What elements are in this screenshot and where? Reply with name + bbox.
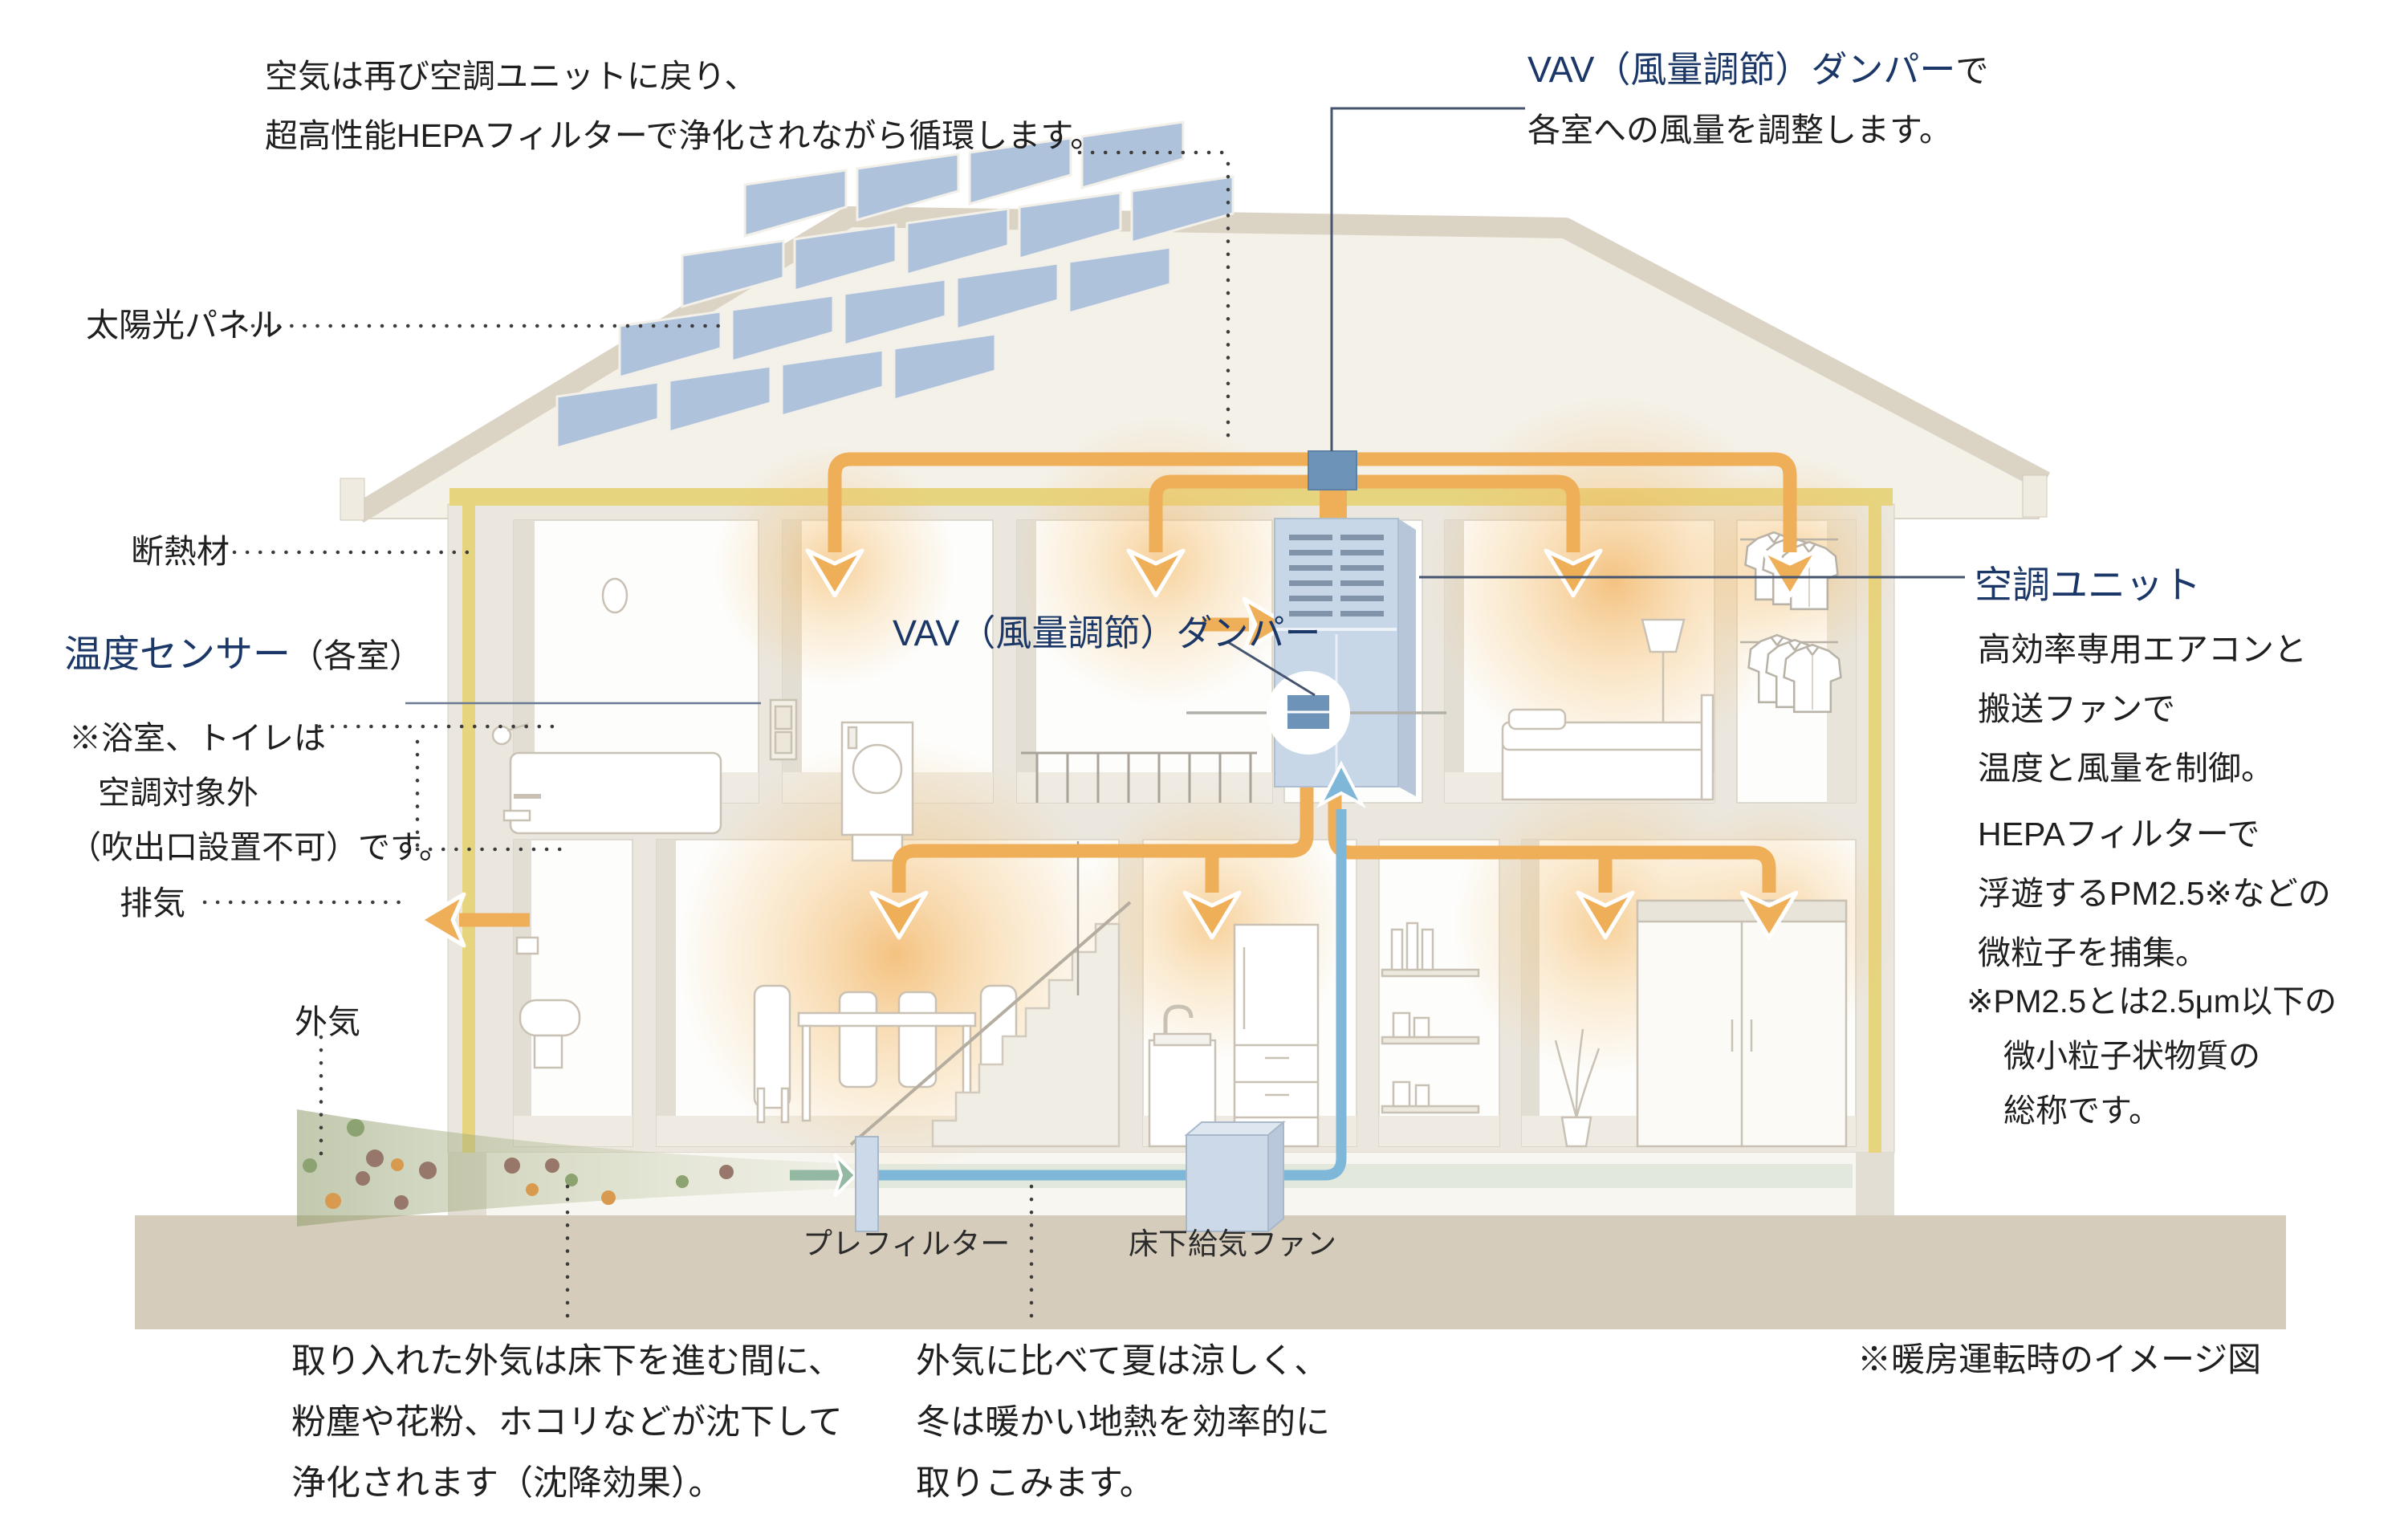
note-return-air: 空気は再び空調ユニットに戻り、 超高性能HEPAフィルターで浄化されながら循環し… <box>265 47 1103 165</box>
bath-note-line1: ※浴室、トイレは <box>69 711 451 766</box>
pm25-note: ※PM2.5とは2.5μm以下の 微小粒子状物質の 総称です。 <box>1967 975 2337 1138</box>
label-temp-sensor: 温度センサー（各室） <box>64 623 422 686</box>
hepa-description: HEPAフィルターで 浮遊するPM2.5※などの 微粒子を捕集。 <box>1978 804 2331 983</box>
underfloor-note-line2: 粉塵や花粉、ホコリなどが沈下して <box>291 1392 843 1453</box>
note-return-line1: 空気は再び空調ユニットに戻り、 <box>265 47 1103 106</box>
vav-top-name: VAV（風量調節）ダンパー <box>1527 40 1955 100</box>
ac-desc-line1: 高効率専用エアコンと <box>1978 620 2307 679</box>
label-vav-center: VAV（風量調節）ダンパー <box>893 604 1320 656</box>
geothermal-note-line1: 外気に比べて夏は涼しく、 <box>916 1331 1330 1392</box>
bath-note-line2: 空調対象外 <box>69 766 451 820</box>
label-outside-air: 外気 <box>295 992 360 1052</box>
ac-unit-description: 高効率専用エアコンと 搬送ファンで 温度と風量を制御。 <box>1978 620 2307 798</box>
label-exhaust: 排気 <box>120 873 185 933</box>
ac-desc-line3: 温度と風量を制御。 <box>1978 739 2307 798</box>
hvac-diagram-page: 空気は再び空調ユニットに戻り、 超高性能HEPAフィルターで浄化されながら循環し… <box>0 0 2408 1530</box>
vav-top-line2: 各室への風量を調整します。 <box>1527 100 1988 160</box>
hepa-line2: 浮遊するPM2.5※などの <box>1978 864 2331 923</box>
pm-note-line3: 総称です。 <box>1967 1084 2337 1138</box>
ac-desc-line2: 搬送ファンで <box>1978 679 2307 739</box>
note-underfloor-purification: 取り入れた外気は床下を進む間に、 粉塵や花粉、ホコリなどが沈下して 浄化されます… <box>291 1331 843 1514</box>
label-insulation: 断熱材 <box>131 522 230 581</box>
underfloor-note-line3: 浄化されます（沈降効果）。 <box>291 1453 843 1514</box>
note-geothermal: 外気に比べて夏は涼しく、 冬は暖かい地熱を効率的に 取りこみます。 <box>916 1331 1330 1514</box>
note-return-line2: 超高性能HEPAフィルターで浄化されながら循環します。 <box>265 106 1103 165</box>
temp-sensor-name: 温度センサー <box>64 623 291 678</box>
label-prefilter: プレフィルター <box>803 1227 1010 1262</box>
label-underfloor-fan: 床下給気ファン <box>1129 1227 1336 1262</box>
label-solar-panel: 太陽光パネル <box>86 295 283 355</box>
note-bath-toilet: ※浴室、トイレは 空調対象外 （吹出口設置不可）です。 <box>69 711 451 875</box>
note-heating-mode: ※暖房運転時のイメージ図 <box>1857 1333 2261 1381</box>
temp-sensor-suffix: （各室） <box>291 626 422 686</box>
geothermal-note-line2: 冬は暖かい地熱を効率的に <box>916 1392 1330 1453</box>
pm-note-line2: 微小粒子状物質の <box>1967 1029 2337 1084</box>
pm-note-line1: ※PM2.5とは2.5μm以下の <box>1967 975 2337 1029</box>
hepa-line3: 微粒子を捕集。 <box>1978 923 2331 983</box>
label-vav-top: VAV（風量調節）ダンパーで 各室への風量を調整します。 <box>1527 40 1988 160</box>
bath-note-line3: （吹出口設置不可）です。 <box>69 820 451 875</box>
labels-layer: 空気は再び空調ユニットに戻り、 超高性能HEPAフィルターで浄化されながら循環し… <box>0 0 2408 1530</box>
label-ac-unit: 空調ユニット <box>1975 554 2201 609</box>
geothermal-note-line3: 取りこみます。 <box>916 1453 1330 1514</box>
vav-top-suffix: で <box>1955 41 1988 100</box>
underfloor-note-line1: 取り入れた外気は床下を進む間に、 <box>291 1331 843 1392</box>
hepa-line1: HEPAフィルターで <box>1978 804 2331 864</box>
